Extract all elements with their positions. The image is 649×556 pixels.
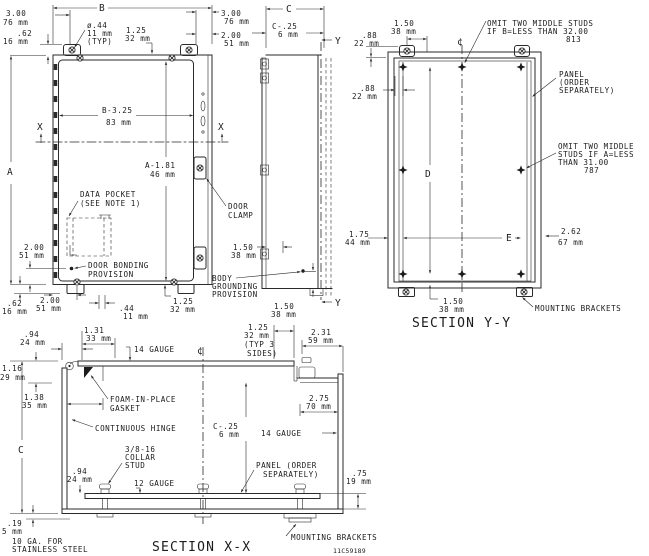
section-yy-title: SECTION Y-Y: [412, 316, 511, 331]
dim-panel-height: A-1.81 46 mm: [145, 62, 175, 280]
note-text: (SEE NOTE 1): [80, 199, 141, 208]
cut-label-x-left: X: [37, 122, 43, 133]
bolt-icon: [186, 47, 192, 53]
dim-c-label: C: [286, 4, 292, 15]
note-text: PROVISION: [212, 290, 258, 299]
side-view-body: [262, 55, 332, 298]
dim-b-label: B: [99, 3, 105, 14]
note-text: DATA POCKET: [80, 190, 136, 199]
dim-text: 35 mm: [22, 401, 47, 410]
dim-text: 3.00: [6, 9, 26, 18]
dim-text: 32 mm: [244, 331, 269, 340]
dim-2-31: 2.31 59 mm: [302, 328, 343, 372]
dim-1-50-top: 1.50 38 mm: [391, 19, 427, 52]
note-text: GASKET: [110, 404, 140, 413]
dim-text: 1.16: [2, 364, 22, 373]
dim-text: 32 mm: [170, 305, 195, 314]
right-wall-section: [338, 374, 343, 509]
bolt-icon: [197, 255, 203, 261]
note-text: STUD: [125, 461, 145, 470]
hole-callout: ø.44 11 mm (TYP): [75, 21, 113, 48]
dim-2-75: 2.75 70 mm: [300, 394, 337, 416]
dim-text: B-3.25: [102, 106, 132, 115]
panel-gauge-note: 12 GAUGE: [134, 479, 175, 493]
front-view-body: [53, 55, 212, 285]
dim-text: 24 mm: [20, 338, 45, 347]
left-wall-section: [62, 368, 67, 509]
note-text: 12 GAUGE: [134, 479, 175, 488]
side-view: C C-.25 6 mm Y Y DOOR CLAMP BODY GRO: [207, 4, 342, 319]
note-text: MOUNTING BRACKETS: [291, 533, 377, 542]
dim-a-label: A: [7, 167, 13, 178]
note-text: DOOR: [228, 202, 248, 211]
dim-19: .19 5 mm: [2, 505, 70, 536]
bolt-icon: [521, 289, 527, 295]
cut-label-y-bottom: Y: [335, 298, 341, 309]
dim-text: A-1.81: [145, 161, 175, 170]
dim-bottom-row: .62 16 mm 2.00 51 mm .44 11 mm 1.25 32 m…: [2, 276, 195, 321]
dim-1-25-typ: 1.25 32 mm (TYP 3 SIDES): [244, 323, 294, 359]
note-text: PROVISION: [88, 270, 134, 279]
dim-text: 46 mm: [150, 170, 175, 179]
dim-text: 38 mm: [439, 305, 464, 314]
section-xx-title: SECTION X-X: [152, 540, 251, 555]
collar-stud-icon: [97, 484, 113, 517]
bolt-icon: [171, 279, 177, 285]
mounting-bracket-icon: [284, 514, 316, 519]
dim-right-top: 3.00 76 mm 2.00 51 mm: [186, 9, 249, 48]
dim-text: 51 mm: [19, 251, 44, 260]
centerline-symbol: ¢: [197, 346, 203, 357]
note-text: 14 GAUGE: [261, 429, 302, 438]
gasket-note: FOAM-IN-PLACE GASKET: [91, 375, 176, 413]
centerline-symbol: ¢: [457, 37, 463, 48]
dim-text: 38 mm: [231, 251, 256, 260]
note-text: 14 GAUGE: [134, 345, 175, 354]
door-section: [78, 361, 294, 366]
note-text: SEPARATELY): [263, 470, 319, 479]
dim-1-16: 1.16 29 mm: [0, 352, 52, 392]
dim-text: 6 mm: [219, 430, 239, 439]
door-gauge-note: 14 GAUGE: [126, 345, 175, 360]
bolt-icon: [519, 48, 525, 54]
dim-text: 5 mm: [2, 527, 22, 536]
dim-text: 44 mm: [345, 238, 370, 247]
xx-dim-c-minus: C-.25 6 mm: [213, 383, 246, 492]
dim-e-label: E: [506, 233, 512, 244]
bolt-icon: [74, 279, 80, 285]
stainless-note: 10 GA. FOR STAINLESS STEEL: [12, 537, 88, 554]
door-clamp-section-icon: [299, 367, 315, 378]
bottom-wall-section: [62, 509, 343, 514]
dim-text: 22 mm: [354, 39, 379, 48]
section-xx-view: ¢ C 1.16 29 mm: [0, 323, 377, 555]
grounding-stud-icon: [301, 269, 304, 272]
dim-text: 59 mm: [308, 336, 333, 345]
note-text: CLAMP: [228, 211, 253, 220]
dim-text: 16 mm: [3, 37, 28, 46]
dim-text: 24 mm: [67, 475, 92, 484]
cut-label-y-top: Y: [335, 36, 341, 47]
xx-mounting-brackets-note: MOUNTING BRACKETS: [286, 524, 377, 542]
dim-75: .75 19 mm: [320, 469, 371, 509]
note-text: PANEL (ORDER: [256, 461, 317, 470]
dim-text: 16 mm: [2, 307, 27, 316]
bolt-icon: [77, 55, 83, 61]
bolt-icon: [403, 289, 409, 295]
dim-1-50-bracket: 1.50 38 mm: [430, 285, 464, 314]
note-text: FOAM-IN-PLACE: [110, 395, 176, 404]
dim-text: 38 mm: [271, 310, 296, 319]
drawing-number: 11C59189: [333, 547, 366, 555]
note-text: 813: [566, 35, 581, 44]
note-text: STAINLESS STEEL: [12, 545, 88, 554]
dim-text: 38 mm: [391, 27, 416, 36]
bolt-icon: [169, 55, 175, 61]
body-grounding: BODY GROUNDING PROVISION 1.50 38 mm 1.50…: [212, 241, 316, 319]
dim-94-hinge: .94 24 mm 1.31 33 mm: [20, 326, 115, 360]
drawing-sheet: X X B 3.00 76 mm .62 16 mm ø.44 11 m: [0, 0, 649, 556]
section-yy-view: ¢ .88 22 mm: [345, 19, 634, 331]
bolt-icon: [197, 165, 203, 171]
dim-panel-width: B-3.25 83 mm: [60, 106, 193, 127]
dim-text: 76 mm: [224, 17, 249, 26]
dim-d-label: D: [425, 169, 431, 180]
note-text: 787: [584, 166, 599, 175]
dim-c-minus: C-.25 6 mm: [252, 22, 323, 39]
collar-studs: [97, 484, 316, 522]
omit-studs-a-note: OMIT TWO MIDDLE STUDS IF A=LESS THAN 31.…: [527, 142, 635, 175]
dim-text: 33 mm: [86, 334, 111, 343]
xx-dim-depth: C: [10, 361, 58, 514]
dim-text: 29 mm: [0, 373, 25, 382]
dim-text: 67 mm: [558, 238, 583, 247]
cut-label-x-right: X: [218, 122, 224, 133]
section-x-cut-line: X X: [36, 122, 228, 143]
bolt-icon: [69, 47, 75, 53]
collar-stud-icon: [295, 484, 306, 509]
dim-text: SIDES): [247, 349, 277, 358]
dim-text: 11 mm: [123, 312, 148, 321]
data-pocket: DATA POCKET (SEE NOTE 1): [67, 190, 141, 256]
dim-text: 2.62: [561, 227, 581, 236]
dim-text: (TYP 3: [244, 340, 274, 349]
xx-panel-note: PANEL (ORDER SEPARATELY): [241, 461, 319, 492]
dim-text: 83 mm: [106, 118, 131, 127]
dim-text: 32 mm: [125, 34, 150, 43]
dim-text: 51 mm: [36, 304, 61, 313]
front-view-door-clamps: [194, 93, 206, 269]
dim-text: 76 mm: [3, 18, 28, 27]
bolt-icon: [404, 48, 410, 54]
dim-94-stud: .94 24 mm: [67, 467, 92, 493]
yy-panel-note: PANEL (ORDER SEPARATELY): [533, 70, 615, 97]
wall-gauge-note: 14 GAUGE: [261, 429, 336, 438]
door-clamp-note: DOOR CLAMP: [207, 179, 254, 221]
bonding-stud-icon: [70, 267, 74, 271]
yy-mounting-brackets-note: MOUNTING BRACKETS: [523, 298, 622, 314]
dim-text: 6 mm: [278, 30, 298, 39]
dim-text: 19 mm: [346, 477, 371, 486]
dim-c-label: C: [18, 445, 24, 456]
note-text: DOOR BONDING: [88, 261, 149, 270]
note-text: MOUNTING BRACKETS: [535, 304, 621, 313]
dim-text: 70 mm: [306, 402, 331, 411]
note-text: CONTINUOUS HINGE: [95, 424, 176, 433]
dim-text: 51 mm: [224, 39, 249, 48]
dim-88-tab: .88 22 mm: [354, 31, 398, 67]
hinge-note: CONTINUOUS HINGE: [72, 420, 176, 433]
panel-section: [85, 494, 320, 499]
dim-1-25-top: 1.25 32 mm: [125, 26, 152, 53]
note-text: SEPARATELY): [559, 86, 615, 95]
engineering-drawing-canvas: X X B 3.00 76 mm .62 16 mm ø.44 11 m: [0, 0, 649, 556]
dim-text: 22 mm: [352, 92, 377, 101]
dim-text: (TYP): [87, 37, 112, 46]
collar-stud-note: 3/8-16 COLLAR STUD: [109, 445, 156, 483]
